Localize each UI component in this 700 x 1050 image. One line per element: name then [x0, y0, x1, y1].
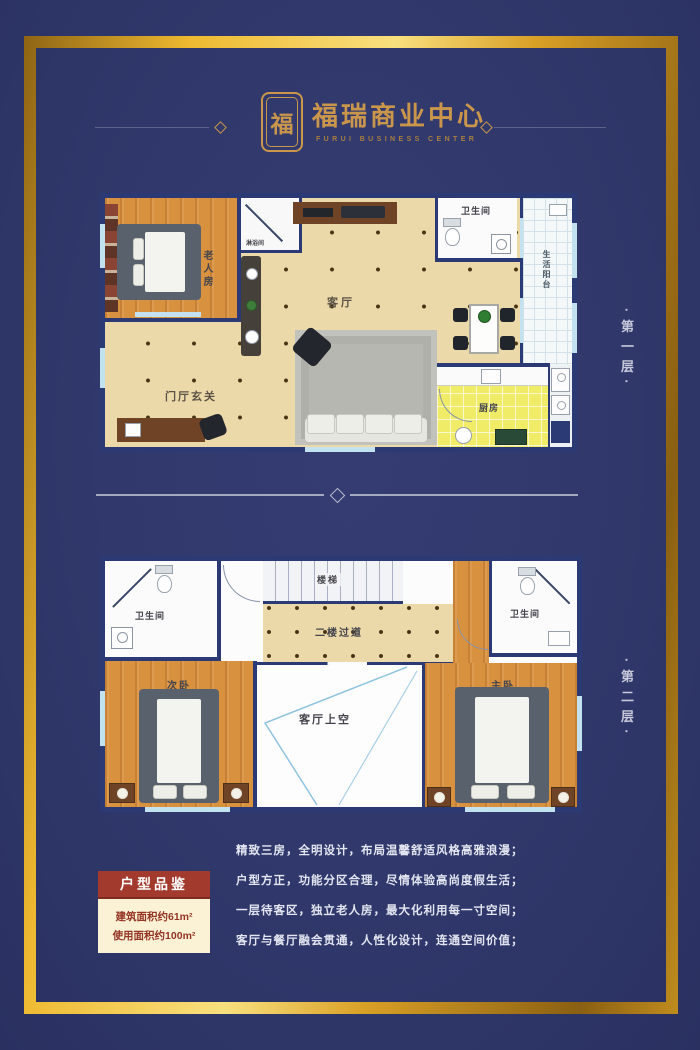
floor1-balcony-label: 生活阳台	[541, 250, 552, 290]
toilet	[155, 565, 173, 593]
elder-bed-mattress	[145, 232, 185, 292]
sofa-cushion	[307, 414, 335, 434]
description-line: 一层待客区，独立老人房，最大化利用每一寸空间；	[236, 896, 571, 926]
area-usable: 使用面积约100m²	[98, 927, 210, 946]
stairs-label: 楼梯	[315, 573, 341, 586]
vanity-sink	[548, 631, 570, 646]
floor1-kitchen-label: 厨房	[479, 401, 499, 414]
window	[100, 348, 105, 388]
washing-machine	[491, 234, 511, 254]
utility-strip	[550, 365, 572, 447]
plant-console	[241, 256, 261, 356]
floor2-corridor: 二楼过道	[263, 604, 453, 662]
floor2-plan: 卫生间 次卧 楼梯 二楼过道	[100, 556, 582, 812]
window	[572, 303, 577, 353]
floor1-bathroom: 卫生间	[435, 198, 517, 260]
floor2-bathroom-right-label: 卫生间	[510, 607, 540, 620]
tv-set	[303, 208, 333, 217]
floor1-side-label: ·第一层·	[610, 262, 636, 437]
bath-angled-wall	[112, 568, 152, 608]
header-line-left	[95, 127, 209, 128]
kitchen-sink	[481, 369, 501, 384]
floor1-plan: 老人房 淋浴间 卫生间	[100, 193, 577, 452]
void-sightlines	[257, 665, 422, 807]
wall	[105, 318, 241, 322]
dining-chair	[453, 336, 468, 350]
toilet	[518, 567, 536, 595]
void-label: 客厅上空	[299, 711, 351, 727]
floor1-kitchen: 厨房	[437, 367, 548, 447]
dining-chair	[500, 336, 515, 350]
floor2-side-label: ·第二层·	[610, 612, 636, 787]
kitchen-door-arc	[439, 389, 472, 422]
plant-pot	[246, 300, 257, 311]
floor2-master-bedroom: 主卧	[425, 663, 577, 807]
master-bed	[455, 687, 549, 803]
nightstand	[427, 787, 451, 807]
lounge-chair	[291, 326, 333, 368]
header-line-right	[494, 127, 606, 128]
dining-set	[453, 298, 515, 362]
second-bed-pillow	[183, 785, 207, 799]
elder-bed	[117, 224, 201, 300]
counter-dark	[551, 421, 570, 443]
toilet	[443, 218, 461, 246]
floor1-balcony: 生活阳台	[523, 198, 572, 365]
description-line: 精致三房，全明设计，布局温馨舒适风格高雅浪漫；	[236, 836, 571, 866]
foyer-tray	[125, 423, 141, 437]
bath-angled-wall	[534, 568, 571, 605]
floor2-second-bedroom: 次卧	[105, 661, 253, 807]
wall	[492, 653, 577, 657]
floor1-bathroom-label: 卫生间	[461, 204, 491, 217]
elder-room-window	[135, 312, 201, 317]
nightstand	[551, 787, 575, 807]
floor2-stairs: 楼梯	[263, 561, 403, 601]
unit-badge: 户型品鉴	[98, 871, 210, 899]
elder-bed-pillow	[133, 238, 144, 260]
logo-character: 福	[271, 105, 294, 139]
sofa-cushion	[336, 414, 364, 434]
foyer-console	[117, 418, 205, 442]
nightstand	[109, 783, 135, 803]
window	[145, 807, 230, 812]
poster-page: 福 福瑞商业中心 FURUI BUSINESS CENTER 老人房 淋浴间	[0, 0, 700, 1050]
logo-seal-inner: 福	[266, 97, 298, 147]
floor1-living-label: 客厅	[327, 294, 355, 310]
master-bed-pillow	[507, 785, 535, 799]
wall	[548, 365, 550, 447]
washing-machine	[111, 627, 133, 649]
tv-console	[293, 202, 397, 224]
floor2-bathroom-left: 卫生间	[105, 561, 217, 657]
window	[572, 223, 577, 278]
floor2-bathroom-left-label: 卫生间	[135, 609, 165, 622]
window	[305, 447, 375, 452]
wall	[435, 198, 438, 260]
wall	[435, 258, 520, 262]
master-bed-pillow	[471, 785, 499, 799]
stove	[495, 429, 527, 445]
shower-angled-wall	[245, 204, 283, 242]
window	[465, 807, 555, 812]
sofa-cushion	[365, 414, 393, 434]
logo-seal: 福	[261, 92, 303, 152]
decor-bowl	[245, 330, 259, 344]
brand-subtitle: FURUI BUSINESS CENTER	[316, 136, 477, 143]
elder-bed-pillow	[133, 264, 144, 286]
floor1-shower-room: 淋浴间	[241, 198, 299, 252]
dining-chair	[453, 308, 468, 322]
living-rug	[295, 330, 437, 445]
kitchen-basin	[455, 427, 472, 444]
floor1-foyer-label: 门厅玄关	[165, 388, 217, 404]
fridge-dial	[557, 373, 566, 382]
area-panel: 建筑面积约61m² 使用面积约100m²	[98, 899, 210, 953]
corridor-label: 二楼过道	[315, 624, 363, 639]
brand-title: 福瑞商业中心	[312, 96, 486, 133]
divider-diamond	[330, 488, 346, 504]
description-line: 客厅与餐厅融会贯通，人性化设计，连通空间价值；	[236, 926, 571, 956]
window	[577, 696, 582, 751]
table-plant	[478, 310, 491, 323]
cabinet-dial	[557, 401, 566, 410]
window	[100, 691, 105, 746]
section-divider	[96, 488, 578, 502]
second-bed-pillow	[153, 785, 177, 799]
description-line: 户型方正，功能分区合理，尽情体验高尚度假生活；	[236, 866, 571, 896]
divider-line	[350, 494, 578, 496]
shower-room-label: 淋浴间	[246, 238, 264, 247]
floor2-void: 客厅上空	[257, 665, 422, 807]
nightstand	[223, 783, 249, 803]
balcony-unit	[549, 204, 567, 216]
second-bed-mattress	[157, 699, 201, 783]
dining-chair	[500, 308, 515, 322]
wall	[241, 250, 302, 253]
divider-line	[96, 494, 324, 496]
floor2-bathroom-right: 卫生间	[492, 561, 577, 653]
sofa-cushion	[394, 414, 422, 434]
second-bed	[139, 689, 219, 803]
area-building: 建筑面积约61m²	[98, 908, 210, 927]
description-block: 精致三房，全明设计，布局温馨舒适风格高雅浪漫； 户型方正，功能分区合理，尽情体验…	[236, 836, 571, 956]
wall	[217, 561, 221, 661]
floor1-elder-room: 老人房	[105, 198, 237, 318]
elder-room-label: 老人房	[199, 250, 214, 289]
window	[100, 224, 105, 268]
bathroom-door-arc	[223, 565, 260, 602]
soundbar	[341, 206, 385, 218]
decor-bowl	[246, 268, 258, 280]
master-bed-mattress	[475, 697, 529, 783]
